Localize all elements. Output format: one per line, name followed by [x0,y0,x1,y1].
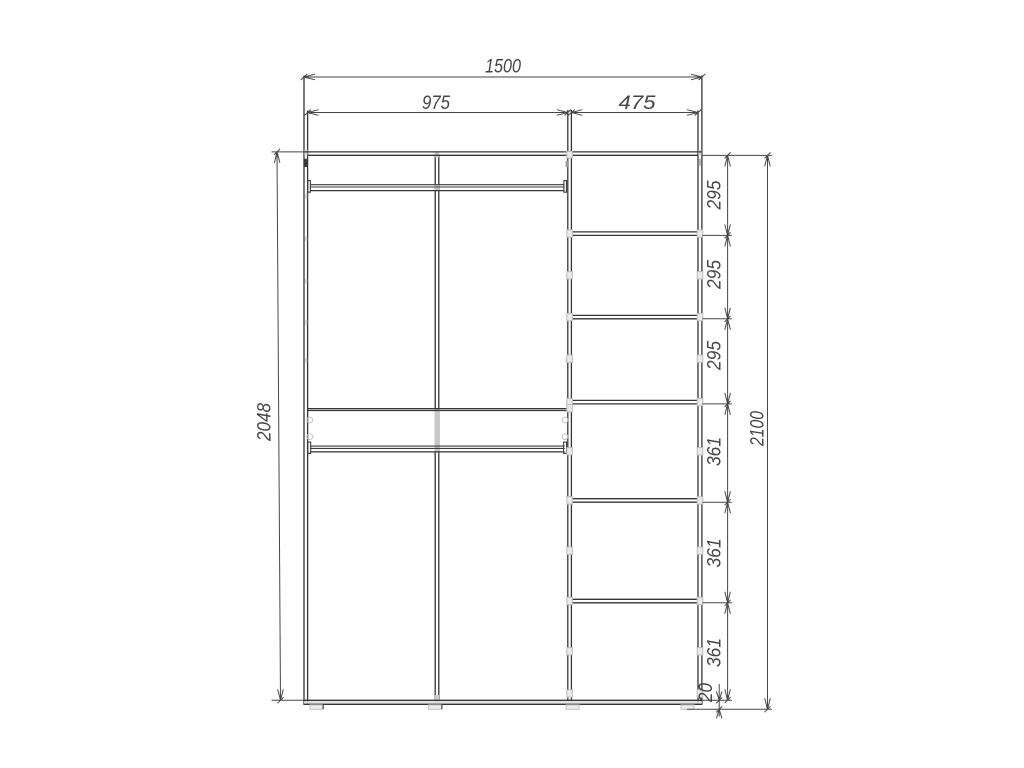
svg-text:295: 295 [705,341,726,371]
svg-text:2100: 2100 [748,411,769,447]
svg-text:20: 20 [696,683,717,703]
svg-text:1500: 1500 [485,57,521,78]
svg-text:295: 295 [705,260,726,290]
svg-text:975: 975 [422,93,450,114]
svg-text:475: 475 [619,93,657,114]
svg-text:295: 295 [705,180,726,210]
svg-text:361: 361 [705,539,726,568]
svg-text:361: 361 [705,437,726,466]
svg-text:361: 361 [705,638,726,667]
svg-text:2048: 2048 [255,403,276,442]
